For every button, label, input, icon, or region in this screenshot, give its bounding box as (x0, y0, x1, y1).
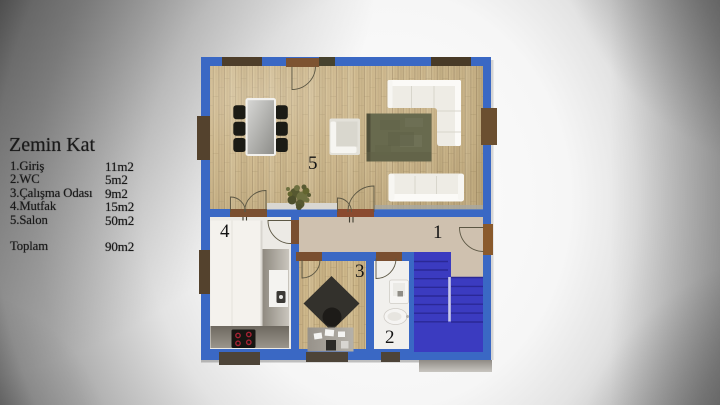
svg-text:5: 5 (308, 153, 318, 174)
svg-text:4: 4 (220, 221, 230, 242)
svg-text:1: 1 (433, 222, 443, 243)
svg-text:3: 3 (355, 261, 365, 282)
svg-text:2: 2 (385, 327, 395, 348)
